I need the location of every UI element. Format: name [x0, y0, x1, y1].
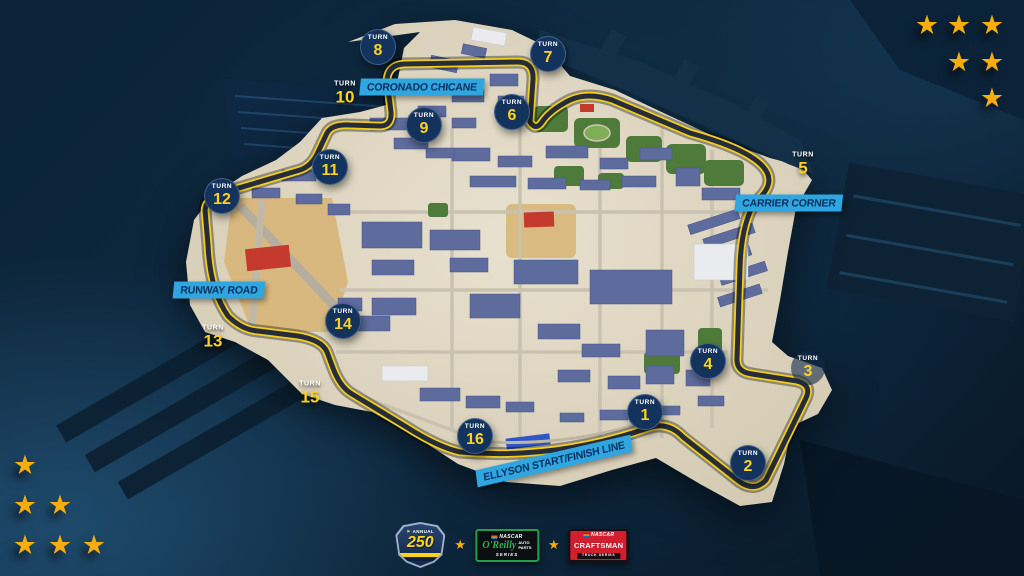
- truck-series-label: TRUCK SERIES: [577, 553, 620, 559]
- nascar-brand-row: NASCAR: [491, 534, 522, 540]
- nascar-wordmark: NASCAR: [591, 532, 614, 538]
- parts-label: PARTS: [518, 546, 531, 550]
- oreilly-series-logo: NASCAR O'Reilly AUTO PARTS SERIES: [475, 529, 539, 562]
- nascar-wordmark: NASCAR: [499, 534, 522, 540]
- nascar-brand-row: NASCAR: [583, 532, 614, 538]
- star-icon: ★: [454, 539, 466, 552]
- badge-yellow-band: [397, 553, 443, 557]
- oreilly-script-wordmark: O'Reilly: [482, 541, 516, 551]
- nascar-bars-icon: [491, 535, 497, 539]
- star-icon: ★: [548, 539, 560, 552]
- craftsman-truck-series-logo: NASCAR CRAFTSMAN TRUCK SERIES: [569, 529, 629, 562]
- badge-footer-band: [404, 558, 436, 561]
- track-map-poster: TURN1TURN2TURN3TURN4TURN5TURN6TURN7TURN8…: [0, 0, 1024, 576]
- nascar-bars-icon: [583, 533, 589, 537]
- series-label: SERIES: [496, 552, 519, 557]
- event-badge-250: ⚑ ANNUAL 250: [395, 522, 445, 568]
- craftsman-wordmark: CRAFTSMAN: [574, 542, 623, 550]
- aerial-map: [0, 0, 1024, 576]
- badge-race-number: 250: [407, 535, 434, 551]
- footer-logos: ⚑ ANNUAL 250 ★ NASCAR O'Reilly AUTO PART…: [395, 522, 628, 568]
- oreilly-wordmark-row: O'Reilly AUTO PARTS: [482, 541, 531, 551]
